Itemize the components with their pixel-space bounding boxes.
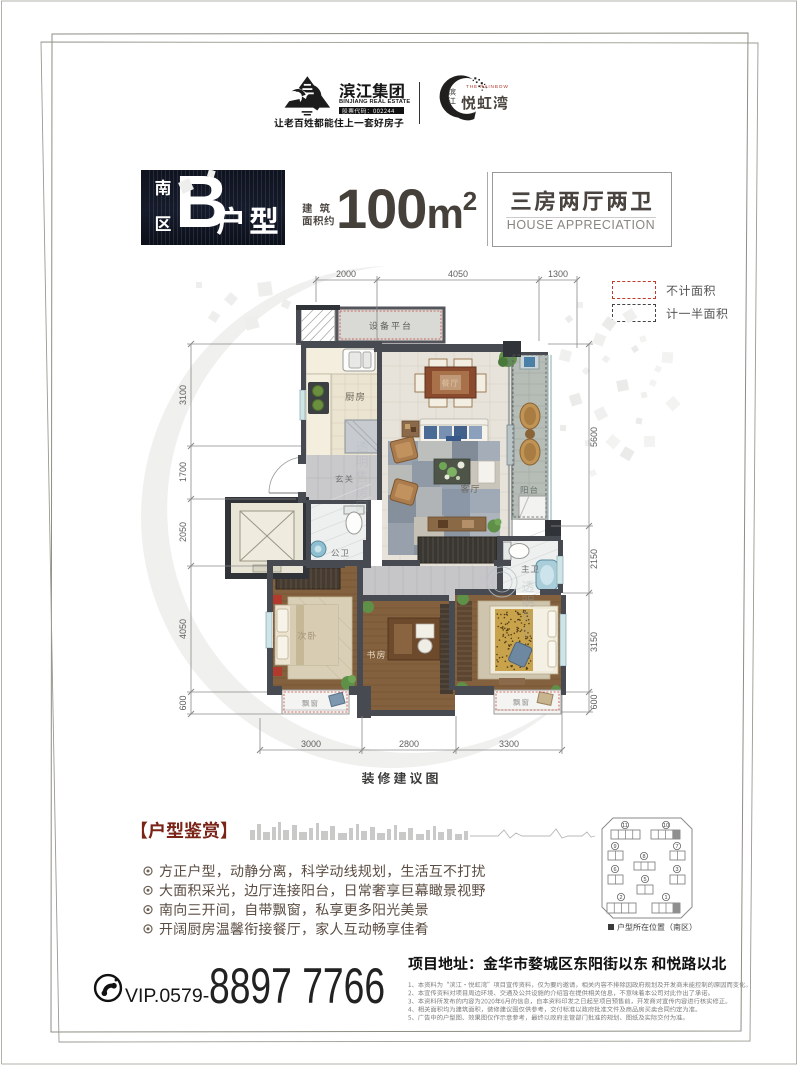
svg-text:4050: 4050 <box>448 269 468 279</box>
svg-text:600: 600 <box>589 694 599 709</box>
svg-text:2050: 2050 <box>178 522 188 542</box>
svg-text:1: 1 <box>664 895 667 901</box>
svg-text:2150: 2150 <box>589 549 599 569</box>
svg-text:3300: 3300 <box>499 739 519 749</box>
svg-text:1300: 1300 <box>548 269 568 279</box>
svg-text:3150: 3150 <box>589 632 599 652</box>
svg-text:600: 600 <box>178 695 188 710</box>
svg-text:10: 10 <box>663 823 669 829</box>
svg-text:3: 3 <box>675 867 678 873</box>
svg-text:5: 5 <box>643 877 646 883</box>
svg-text:3000: 3000 <box>301 739 321 749</box>
svg-text:6: 6 <box>613 867 616 873</box>
svg-text:3100: 3100 <box>178 385 188 405</box>
svg-text:4050: 4050 <box>178 619 188 639</box>
svg-text:1700: 1700 <box>178 462 188 482</box>
svg-text:9: 9 <box>613 844 616 850</box>
svg-text:2800: 2800 <box>399 739 419 749</box>
svg-text:11: 11 <box>622 823 628 829</box>
svg-text:2000: 2000 <box>336 269 356 279</box>
svg-text:2: 2 <box>619 895 622 901</box>
svg-text:8: 8 <box>642 854 645 860</box>
svg-text:5600: 5600 <box>589 427 599 447</box>
svg-text:7: 7 <box>675 844 678 850</box>
